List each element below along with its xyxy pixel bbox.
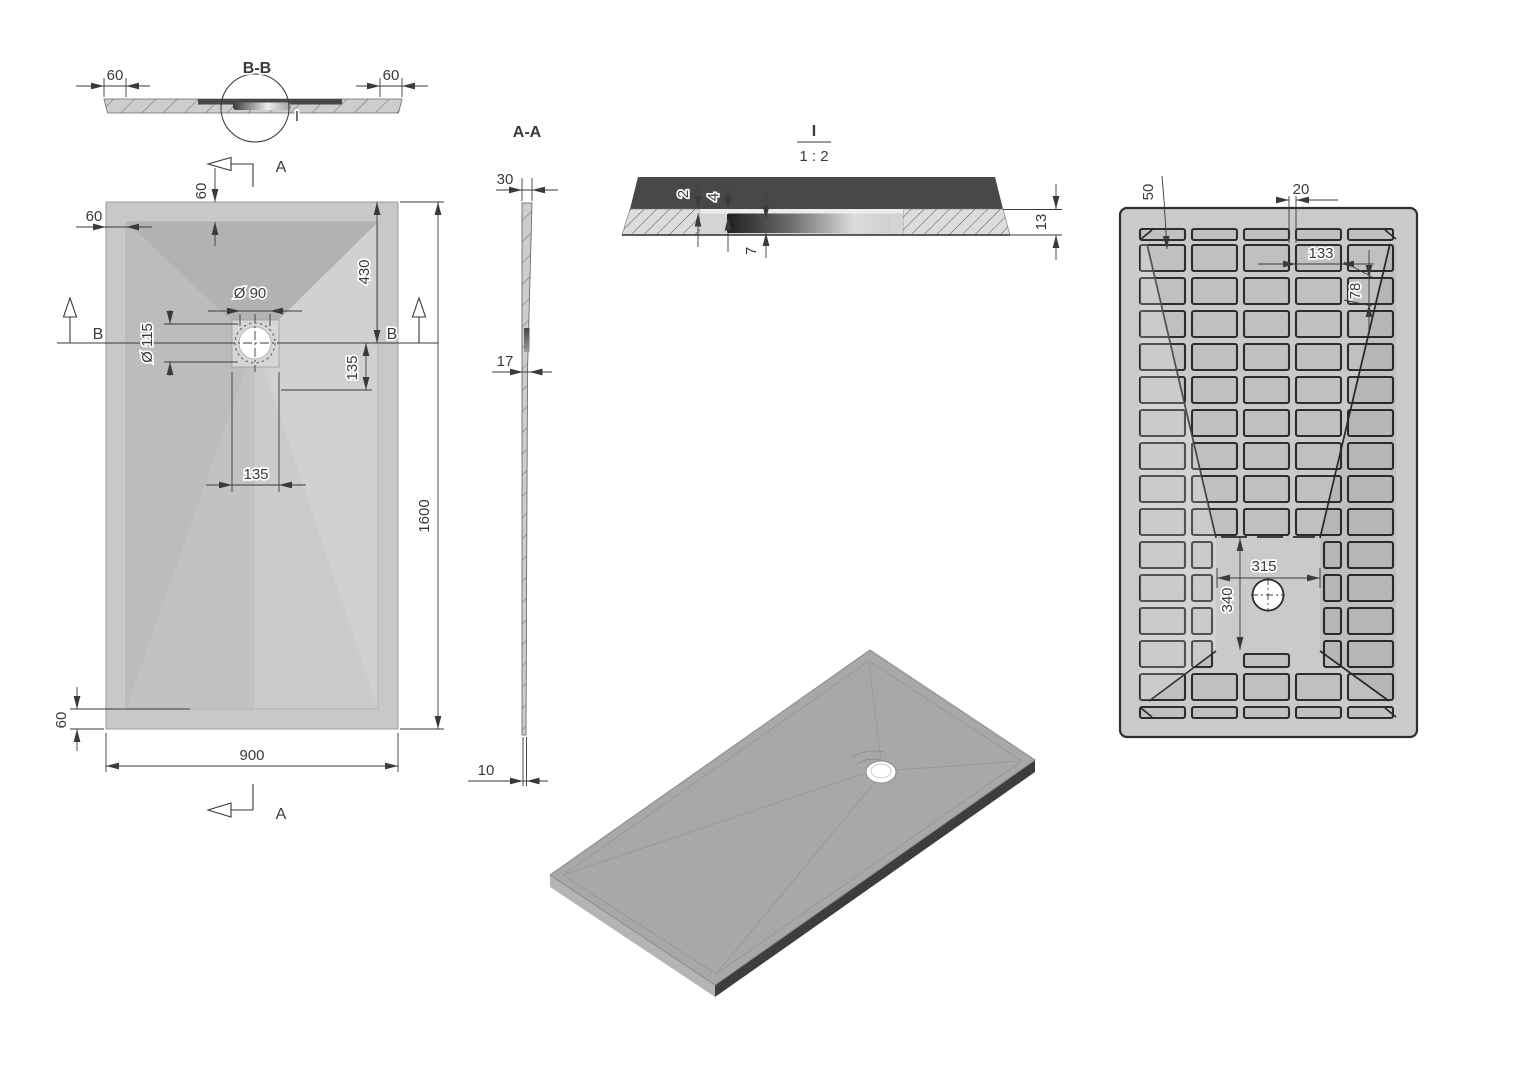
- detail-drain-channel: [727, 214, 890, 234]
- svg-text:60: 60: [383, 67, 400, 84]
- svg-text:Ø 115: Ø 115: [139, 323, 156, 363]
- svg-text:1600: 1600: [416, 499, 433, 532]
- bb-drain-recess: [233, 103, 291, 111]
- detail-slab-right-hatch: [903, 209, 1010, 235]
- svg-text:13: 13: [1033, 214, 1050, 231]
- rib-pocket: [1296, 344, 1341, 370]
- dim-bb-right-60: 60: [356, 67, 428, 97]
- dim-aa-10: 10: [468, 737, 548, 786]
- dim-plan-900: 900: [106, 733, 398, 772]
- detail-slab-left-hatch: [622, 209, 700, 235]
- drawing-sheet: B-B I 60 60 A: [0, 0, 1527, 1080]
- svg-text:B: B: [93, 326, 104, 343]
- rib-pocket: [1296, 410, 1341, 436]
- svg-text:340: 340: [1219, 587, 1236, 612]
- rib-pocket: [1244, 229, 1289, 240]
- rib-pocket: [1244, 654, 1289, 667]
- svg-text:Ø 90: Ø 90: [234, 285, 267, 302]
- svg-text:10: 10: [478, 762, 495, 779]
- svg-text:60: 60: [86, 208, 103, 225]
- view-detail-i: I 1 : 2 2 4 7 13: [622, 123, 1062, 260]
- rib-pocket: [1244, 410, 1289, 436]
- svg-text:135: 135: [243, 466, 268, 483]
- view-plan: A A B B 60 60 430: [53, 158, 444, 824]
- cut-arrow-bottom: A: [208, 784, 287, 823]
- bb-title: B-B: [243, 60, 271, 77]
- aa-strip-hatch: [522, 203, 532, 735]
- svg-text:7: 7: [743, 247, 760, 255]
- rib-pocket: [1192, 377, 1237, 403]
- svg-text:78: 78: [1347, 283, 1364, 300]
- bb-detail-ref: I: [295, 108, 299, 125]
- detail-scale: 1 : 2: [799, 148, 828, 165]
- svg-text:A: A: [276, 806, 287, 823]
- rib-pocket: [1192, 278, 1237, 304]
- dim-plan-1600: 1600: [400, 202, 444, 729]
- rib-pocket: [1296, 311, 1341, 337]
- detail-gap: [700, 209, 903, 214]
- view-bottom: 50 20 133 78 315 340: [1120, 176, 1417, 737]
- rib-pocket: [1244, 245, 1289, 271]
- aa-drain-notch: [524, 328, 530, 352]
- view-isometric: [550, 650, 1035, 997]
- rib-pocket: [1192, 410, 1237, 436]
- svg-text:20: 20: [1293, 181, 1310, 198]
- svg-text:315: 315: [1251, 558, 1276, 575]
- rib-pocket: [1296, 674, 1341, 700]
- rib-pocket: [1192, 229, 1237, 240]
- svg-text:900: 900: [239, 747, 264, 764]
- svg-text:133: 133: [1308, 245, 1333, 262]
- rib-pocket: [1192, 707, 1237, 718]
- svg-text:430: 430: [356, 259, 373, 284]
- rib-pocket: [1296, 377, 1341, 403]
- svg-text:A: A: [276, 159, 287, 176]
- svg-text:4: 4: [705, 193, 722, 201]
- rib-pocket: [1192, 674, 1237, 700]
- view-section-aa: A-A 30 17 10: [468, 124, 558, 786]
- rib-pocket: [1296, 443, 1341, 469]
- svg-text:60: 60: [107, 67, 124, 84]
- svg-text:60: 60: [193, 183, 210, 200]
- svg-text:135: 135: [344, 355, 361, 380]
- view-section-bb: B-B I 60 60: [76, 60, 428, 142]
- rib-pocket: [1244, 344, 1289, 370]
- engineering-drawing-canvas: B-B I 60 60 A: [0, 0, 1527, 1080]
- svg-text:30: 30: [497, 171, 514, 188]
- rib-pocket: [1244, 476, 1289, 502]
- rib-pocket: [1192, 311, 1237, 337]
- svg-text:50: 50: [1140, 184, 1157, 201]
- svg-text:17: 17: [497, 353, 514, 370]
- cut-arrow-top: A: [208, 158, 287, 188]
- rib-pocket: [1244, 674, 1289, 700]
- rib-pocket: [1192, 344, 1237, 370]
- rib-pocket: [1244, 509, 1289, 535]
- dim-bb-left-60: 60: [76, 67, 150, 97]
- aa-title: A-A: [513, 124, 542, 141]
- svg-text:B: B: [387, 326, 398, 343]
- dim-detail-13: 13: [1033, 184, 1056, 260]
- svg-text:2: 2: [675, 190, 692, 198]
- rib-pocket: [1296, 278, 1341, 304]
- detail-title: I: [812, 123, 816, 140]
- rib-pocket: [1244, 377, 1289, 403]
- rib-pocket: [1244, 707, 1289, 718]
- rib-pocket: [1296, 229, 1341, 240]
- rib-pocket: [1244, 443, 1289, 469]
- rib-pocket: [1296, 707, 1341, 718]
- rib-pocket: [1192, 245, 1237, 271]
- rib-pocket: [1244, 311, 1289, 337]
- rib-pocket: [1244, 278, 1289, 304]
- dim-aa-30: 30: [496, 171, 558, 201]
- svg-text:60: 60: [53, 712, 70, 729]
- section-marker-b-left: B: [57, 298, 103, 343]
